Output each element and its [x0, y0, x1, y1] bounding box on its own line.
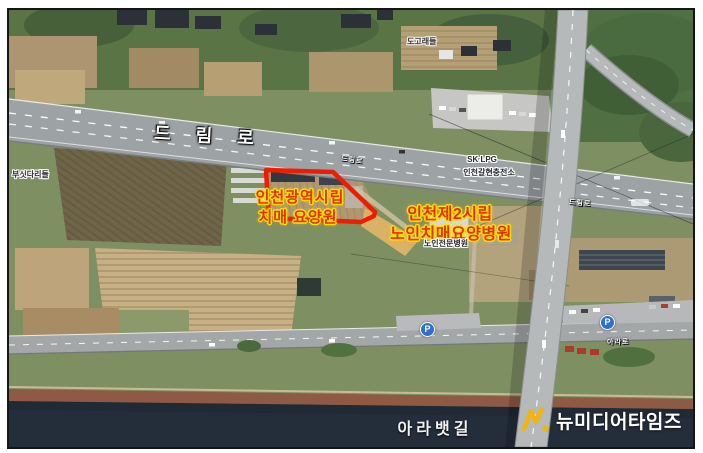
parking-icon: P [420, 322, 435, 337]
newmedia-logo-icon [521, 406, 549, 434]
satellite-map: 드 림 로 드림로 드림로 아라로 인천광역시립 치매 요양원 인천제2시립 노… [7, 8, 695, 449]
warehouse-bottom-right [565, 238, 693, 306]
road-marking-smudge [631, 199, 649, 206]
article-figure: 드 림 로 드림로 드림로 아라로 인천광역시립 치매 요양원 인천제2시립 노… [0, 0, 703, 453]
watermark: 뉴미디어타임즈 [521, 406, 682, 434]
watermark-brand-text: 뉴미디어타임즈 [556, 407, 682, 434]
parking-icon: P [600, 315, 615, 330]
white-shed [439, 50, 453, 59]
satellite-imagery [9, 10, 693, 447]
